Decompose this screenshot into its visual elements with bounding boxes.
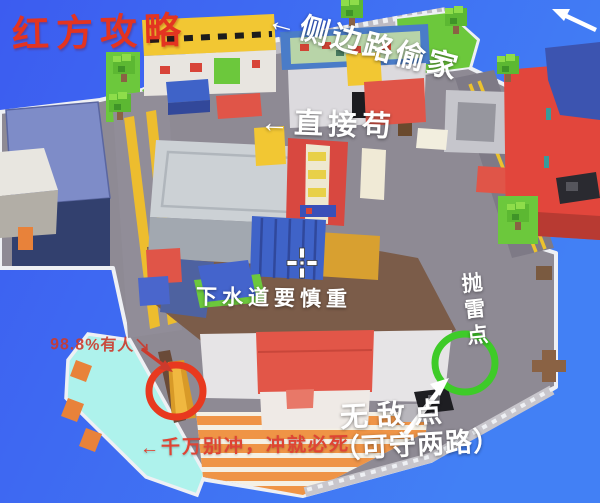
crate-water <box>536 266 552 280</box>
tower-cream <box>360 148 386 200</box>
annotation-sewer-warning: 下水道要慎重 <box>196 287 352 312</box>
box-blue-2 <box>138 276 170 306</box>
tree-pad <box>214 58 240 84</box>
annotation-direct-camp: ←直接苟 <box>260 108 397 143</box>
map-svg <box>0 0 600 503</box>
guide-title: 红方攻略 <box>12 12 189 55</box>
box-white-flat <box>416 128 448 150</box>
game-viewport[interactable]: 红方攻略 ←侧边路偷家 ←直接苟 下水道要慎重 抛雷点 无敌点 （可守两路） 9… <box>0 0 600 503</box>
box-gold <box>316 232 380 280</box>
annotation-enemy-presence: 98.8%有人↘ <box>50 337 152 356</box>
platform-courtyard <box>444 90 508 154</box>
building-red-tower <box>286 138 348 226</box>
container-blue-1 <box>250 216 326 280</box>
annotation-rush-warning: ←千万别冲，冲就必死 <box>140 435 350 459</box>
building-blue-small <box>166 79 210 115</box>
annotation-invincible-point: 无敌点 <box>339 397 451 432</box>
box-red-small <box>216 93 262 119</box>
